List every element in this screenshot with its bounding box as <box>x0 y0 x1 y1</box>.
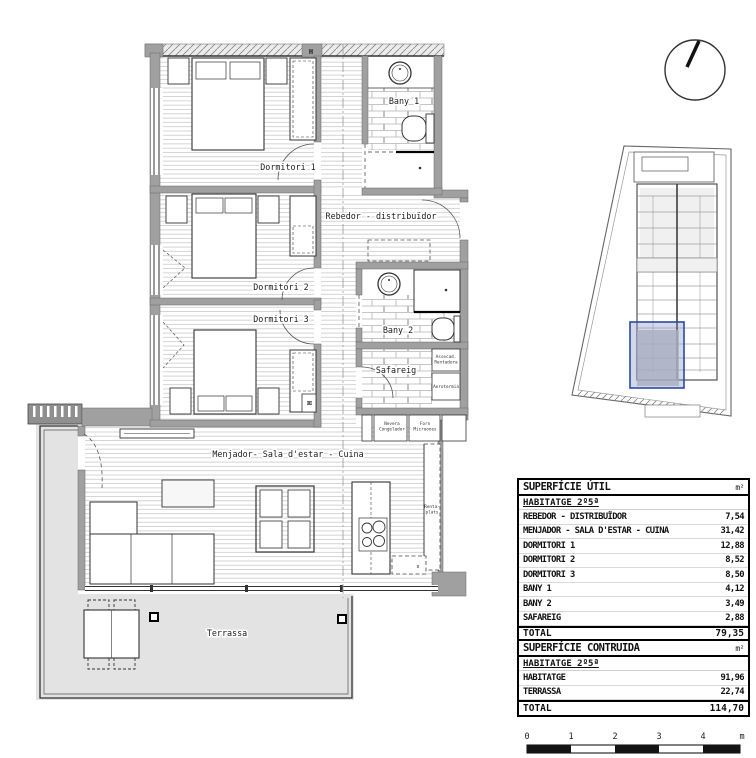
bany1-wall <box>362 56 368 144</box>
pillow <box>196 198 223 213</box>
scale-tick-2: 2 <box>612 732 617 742</box>
nightstand <box>266 58 287 84</box>
table-total-util: TOTAL79,35 <box>519 626 748 641</box>
label-dryer-2: Rentadora <box>434 360 458 366</box>
table-row: DORMITORI 112,88 <box>519 539 748 554</box>
shower-icon <box>414 270 460 312</box>
table-row: SAFAREIG2,88 <box>519 612 748 627</box>
dining-chair <box>288 521 310 548</box>
label-oven-1: Forn <box>420 421 431 427</box>
bany2-top-wall <box>356 262 468 269</box>
scale-tick-0: 0 <box>524 732 529 742</box>
dining-chair <box>260 490 282 517</box>
sliding-glass-door <box>85 585 438 592</box>
table-row: BANY 14,12 <box>519 583 748 598</box>
safareig-bottom-wall <box>356 408 468 415</box>
scale-tick-4: 4 <box>700 732 705 742</box>
dorm2-dorm3-wall <box>150 298 321 305</box>
label-aerotermia: Aerotermia <box>433 384 459 390</box>
bathroom-1 <box>368 62 434 169</box>
table-row: HABITATGE91,96 <box>519 671 748 686</box>
living-top-left-wall <box>82 408 152 426</box>
wardrobe-dorm1 <box>290 58 316 140</box>
table-title: SUPERFÍCIE ÚTIL <box>523 481 610 493</box>
shower-drain <box>419 167 422 170</box>
dining-chair <box>288 490 310 517</box>
location-map <box>572 146 731 417</box>
room-label-dormitori3: Dormitori 3 <box>253 314 308 324</box>
sofa <box>90 534 214 584</box>
scale-bar: 0 1 2 3 4 m <box>524 732 744 753</box>
table-row: DORMITORI 28,52 <box>519 554 748 569</box>
table-row: MENJADOR - SALA D'ESTAR - CUINA31,42 <box>519 525 748 540</box>
toilet-icon <box>402 116 426 141</box>
table-row: DORMITORI 38,50 <box>519 568 748 583</box>
pillow <box>230 62 260 79</box>
terrace-post <box>338 615 346 623</box>
table-subtitle-util: HABITATGE 2º5ª <box>519 496 748 510</box>
table-total-built: TOTAL114,70 <box>519 700 748 715</box>
coffee-table <box>162 480 214 507</box>
kitchen-sink-cabinet <box>392 556 426 574</box>
label-oven-2: Microones <box>413 427 437 433</box>
room-label-bany2: Bany 2 <box>383 325 413 335</box>
label-sink: s <box>416 564 419 570</box>
table-unit: m² <box>735 644 744 653</box>
room-label-safareig: Safareig <box>376 365 416 375</box>
h-marker-dorm3: H <box>306 401 314 405</box>
label-fridge-2: Congelador <box>379 427 405 433</box>
scale-tick-3: 3 <box>656 732 661 742</box>
room-label-bany1: Bany 1 <box>389 96 419 106</box>
nightstand <box>168 58 189 84</box>
area-table: SUPERFÍCIE ÚTIL m² HABITATGE 2º5ª REBEDO… <box>517 478 750 717</box>
scale-unit: m <box>739 732 744 742</box>
dining-chair <box>260 521 282 548</box>
table-row: TERRASSA22,74 <box>519 686 748 701</box>
pillow <box>226 396 252 411</box>
nightstand <box>258 196 279 223</box>
h-marker-top: H <box>309 48 313 56</box>
pillow <box>225 198 252 213</box>
floor-plan-sheet: Dormitori 1 Dormitori 2 Dormitori 3 Bany… <box>0 0 756 758</box>
label-dryer-1: Assecad. <box>436 354 457 360</box>
pillow <box>198 396 224 411</box>
window-dorm1 <box>151 88 163 175</box>
room-label-terrassa: Terrassa <box>207 628 247 638</box>
room-label-menjador: Menjador- Sala d'estar - Cuina <box>212 449 363 459</box>
table-subtitle-built: HABITATGE 2º5ª <box>519 657 748 671</box>
north-arrow-icon <box>665 40 725 100</box>
table-header-built: SUPERFÍCIE CONTRUIDA m² <box>519 641 748 657</box>
dorm3-living-wall <box>150 420 321 427</box>
table-row: BANY 23,49 <box>519 597 748 612</box>
table-title: SUPERFÍCIE CONTRUIDA <box>523 642 639 654</box>
party-wall-hatch <box>145 44 444 56</box>
safareig-tiles <box>362 349 432 408</box>
pillow <box>196 62 226 79</box>
room-label-dormitori2: Dormitori 2 <box>253 282 308 292</box>
table-unit: m² <box>735 483 744 492</box>
table-header-util: SUPERFÍCIE ÚTIL m² <box>519 480 748 496</box>
scale-tick-1: 1 <box>568 732 573 742</box>
nightstand <box>258 388 279 414</box>
dorm1-dorm2-wall <box>150 186 321 193</box>
nightstand <box>166 196 187 223</box>
room-label-dormitori1: Dormitori 1 <box>260 162 315 172</box>
label-dishwasher-1: Renta- <box>424 504 440 510</box>
label-fridge-1: Nevera <box>384 421 400 427</box>
table-row: REBEDOR - DISTRIBUÏDOR7,54 <box>519 510 748 525</box>
toilet-icon <box>432 318 454 340</box>
label-dishwasher-2: plats <box>426 510 439 516</box>
unit-highlight <box>630 322 684 388</box>
terrace-post <box>150 613 158 621</box>
sofa-chaise <box>90 502 137 534</box>
room-label-rebedor: Rebedor - distribuïdor <box>326 211 437 221</box>
nightstand <box>170 388 191 414</box>
